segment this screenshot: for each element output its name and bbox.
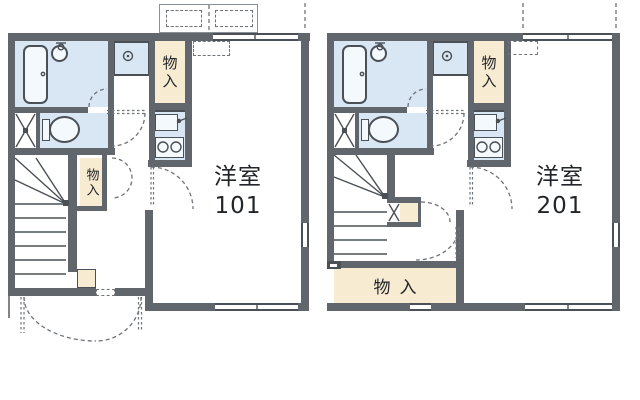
window-mullions: [255, 33, 568, 311]
shaft-x-icon: [16, 114, 35, 147]
linework-overlay: [0, 0, 640, 400]
fixture-glyphs-101: [9, 43, 187, 318]
stairs-201: [334, 155, 388, 254]
stairs-101: [15, 158, 69, 274]
door-swing-arcs-201: [408, 3, 616, 260]
door-swing-arcs-101: [21, 3, 305, 341]
understair-hatch-x-icon: [389, 204, 399, 221]
fixture-glyphs-201: [360, 43, 506, 152]
shaft-x-icon: [335, 114, 354, 147]
floorplan-canvas: 物入 物入 洋室 101 物入 物入 洋室 201: [0, 0, 640, 400]
